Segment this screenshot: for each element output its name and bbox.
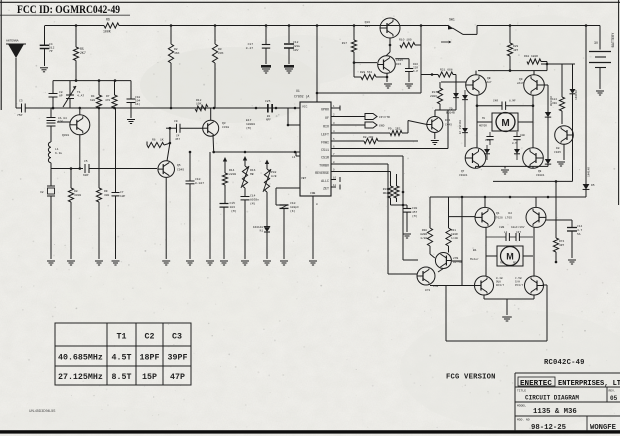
svg-text:1N4148: 1N4148 xyxy=(588,167,591,177)
svg-text:C445: C445 xyxy=(445,124,452,127)
svg-text:4R7: 4R7 xyxy=(513,49,518,52)
svg-text:REV.: REV. xyxy=(609,390,616,393)
svg-text:R31: R31 xyxy=(451,229,456,232)
svg-text:C3001: C3001 xyxy=(536,174,545,177)
svg-text:C10: C10 xyxy=(195,178,201,181)
svg-text:LT05: LT05 xyxy=(505,217,512,220)
svg-text:WONGFE: WONGFE xyxy=(590,424,617,432)
svg-text:FCG VERSION: FCG VERSION xyxy=(446,374,496,382)
svg-text:R13: R13 xyxy=(383,188,388,191)
svg-text:Q5: Q5 xyxy=(177,164,181,167)
svg-text:98-12-25: 98-12-25 xyxy=(531,424,566,432)
svg-text:C15: C15 xyxy=(230,202,236,205)
svg-text:2K7: 2K7 xyxy=(80,51,86,55)
svg-text:VCC: VCC xyxy=(302,106,308,109)
svg-text:D5: D5 xyxy=(591,184,595,187)
svg-text:23K: 23K xyxy=(218,52,224,55)
svg-text:7P: 7P xyxy=(49,50,53,53)
svg-text:C7: C7 xyxy=(120,191,124,194)
svg-text:C17: C17 xyxy=(248,43,254,46)
svg-text:CY8O2 (A: CY8O2 (A xyxy=(294,95,309,99)
svg-text:L2: L2 xyxy=(504,231,508,234)
svg-text:2R2: 2R2 xyxy=(395,128,401,131)
svg-text:27.125MHz: 27.125MHz xyxy=(58,373,103,382)
svg-text:8.MF: 8.MF xyxy=(509,100,516,103)
svg-text:R12: R12 xyxy=(196,99,202,102)
svg-text:Q1: Q1 xyxy=(496,212,500,215)
svg-text:CS1R: CS1R xyxy=(321,156,329,160)
svg-text:0?2: 0?2 xyxy=(425,289,430,292)
svg-text:05: 05 xyxy=(610,395,618,402)
svg-text:D2: D2 xyxy=(508,212,512,215)
svg-text:C47: C47 xyxy=(516,231,521,234)
svg-text:10V: 10V xyxy=(293,49,299,52)
svg-text:QB: QB xyxy=(487,77,491,80)
svg-text:K1: K1 xyxy=(260,230,264,233)
svg-text:R30: R30 xyxy=(422,229,427,232)
svg-text:(M): (M) xyxy=(250,202,256,206)
svg-text:P9: P9 xyxy=(388,128,392,131)
svg-text:R16: R16 xyxy=(250,169,256,172)
svg-text:457: 457 xyxy=(412,211,417,214)
svg-text:C4R: C4R xyxy=(493,100,498,103)
svg-text:LEFT: LEFT xyxy=(321,133,329,137)
svg-text:1/2W: 1/2W xyxy=(420,236,427,240)
svg-text:R74: R74 xyxy=(559,240,564,243)
svg-text:(M): (M) xyxy=(412,214,417,218)
svg-text:P02: P02 xyxy=(271,171,277,174)
svg-text:AP/50: AP/50 xyxy=(453,260,462,264)
svg-text:330: 330 xyxy=(552,102,557,105)
svg-text:R17: R17 xyxy=(342,42,347,45)
svg-text:470: 470 xyxy=(105,99,110,102)
svg-text:C10: C10 xyxy=(290,202,296,205)
svg-text:(M): (M) xyxy=(246,126,252,130)
svg-text:X2: X2 xyxy=(40,191,44,194)
svg-text:CNB: CNB xyxy=(310,192,315,195)
svg-text:R4: R4 xyxy=(91,95,95,98)
svg-text:DR2: DR2 xyxy=(383,192,388,195)
svg-text:27B: 27B xyxy=(453,257,458,260)
svg-text:10P: 10P xyxy=(120,195,125,198)
svg-text:M1: M1 xyxy=(482,117,486,120)
svg-text:8039n: 8039n xyxy=(250,199,259,202)
svg-text:R10 100: R10 100 xyxy=(399,39,412,42)
svg-text:MOD. NO: MOD. NO xyxy=(517,419,530,422)
svg-text:C3: C3 xyxy=(172,333,182,342)
svg-text:REVERSE: REVERSE xyxy=(315,171,329,175)
svg-text:Q16: Q16 xyxy=(365,21,371,24)
svg-text:R29: R29 xyxy=(513,45,518,48)
svg-text:1AA7: 1AA7 xyxy=(485,81,492,84)
svg-text:R6: R6 xyxy=(106,18,110,22)
svg-text:C945: C945 xyxy=(177,169,184,172)
svg-text:C4I: C4I xyxy=(485,139,490,142)
svg-text:Q3: Q3 xyxy=(222,122,226,125)
svg-text:75P: 75P xyxy=(17,114,23,117)
svg-text:R7: R7 xyxy=(106,95,110,98)
svg-text:10uF/16V: 10uF/16V xyxy=(511,225,525,229)
svg-text:L3: L3 xyxy=(292,156,296,159)
svg-text:K.P: K.P xyxy=(413,70,418,73)
svg-text:617: 617 xyxy=(365,25,371,28)
svg-text:39PF: 39PF xyxy=(168,354,188,363)
svg-text:1K: 1K xyxy=(160,139,164,142)
svg-text:C25: C25 xyxy=(265,100,271,103)
svg-text:C14: C14 xyxy=(577,225,582,228)
svg-text:FCC ID: OGMRC042-49: FCC ID: OGMRC042-49 xyxy=(17,4,120,16)
svg-text:DC3/7: DC3/7 xyxy=(496,283,504,287)
svg-text:R17: R17 xyxy=(432,91,437,94)
svg-text:R9: R9 xyxy=(104,190,108,193)
svg-text:GND: GND xyxy=(379,124,385,127)
svg-text:2006: 2006 xyxy=(430,95,437,98)
svg-text:B1: B1 xyxy=(473,249,477,252)
svg-text:15P: 15P xyxy=(142,373,157,382)
svg-text:2200: 2200 xyxy=(229,173,236,176)
svg-text:70: 70 xyxy=(449,108,453,111)
svg-text:0.47: 0.47 xyxy=(246,47,253,50)
svg-text:C318: C318 xyxy=(222,126,229,129)
svg-text:TURBO: TURBO xyxy=(319,164,329,168)
svg-text:U1: U1 xyxy=(296,89,300,93)
svg-text:D13: D13 xyxy=(445,119,450,122)
svg-text:BATTERY: BATTERY xyxy=(612,32,616,48)
svg-text:VBT: VBT xyxy=(301,177,306,180)
svg-text:180R: 180R xyxy=(451,233,458,236)
svg-text:BU14B: BU14B xyxy=(446,112,455,115)
svg-text:300: 300 xyxy=(104,194,109,197)
svg-text:D8: D8 xyxy=(556,147,560,150)
svg-text:R2: R2 xyxy=(174,48,178,51)
svg-text:10: 10 xyxy=(333,176,337,179)
svg-text:E4 1N4148: E4 1N4148 xyxy=(459,120,462,134)
svg-text:10K: 10K xyxy=(196,103,202,106)
svg-text:OF: OF xyxy=(325,116,329,120)
svg-text:40.685MHz: 40.685MHz xyxy=(58,354,103,363)
svg-text:1K): 1K) xyxy=(135,102,140,106)
svg-text:C3: C3 xyxy=(19,100,23,103)
svg-text:CIRCUIT DIAGRAM: CIRCUIT DIAGRAM xyxy=(525,394,579,401)
svg-text:C30: C30 xyxy=(412,207,417,210)
svg-text:R3: R3 xyxy=(218,48,222,51)
svg-text:ZET: ZET xyxy=(323,187,329,191)
svg-text:S/H: S/H xyxy=(515,280,520,284)
svg-text:680: 680 xyxy=(90,99,95,102)
svg-text:R6: R6 xyxy=(152,139,156,142)
svg-text:C2: C2 xyxy=(145,333,155,342)
svg-text:(K): (K) xyxy=(290,209,296,213)
svg-text:M: M xyxy=(501,118,509,129)
svg-text:4.A7: 4.A7 xyxy=(77,95,84,98)
svg-text:SW1: SW1 xyxy=(449,18,455,22)
svg-text:103: 103 xyxy=(230,206,236,209)
svg-text:REV: REV xyxy=(513,262,518,265)
svg-text:C9: C9 xyxy=(174,120,178,123)
svg-text:Q9: Q9 xyxy=(538,170,542,173)
svg-text:R8 2R2: R8 2R2 xyxy=(363,136,374,139)
svg-text:A/B: A/B xyxy=(271,174,277,178)
svg-text:UPRO: UPRO xyxy=(321,108,329,112)
svg-text:8.M: 8.M xyxy=(512,142,517,145)
svg-text:FWD: FWD xyxy=(500,262,505,265)
svg-text:3300: 3300 xyxy=(74,194,81,197)
svg-text:102pF: 102pF xyxy=(290,206,299,209)
svg-text:R8: R8 xyxy=(74,190,78,193)
svg-text:C2B: C2B xyxy=(499,226,504,229)
svg-text:R10 180R: R10 180R xyxy=(524,55,538,58)
svg-text:C14: C14 xyxy=(250,195,256,198)
svg-text:CP/CTR: CP/CTR xyxy=(379,115,390,119)
svg-text:Q7: Q7 xyxy=(461,170,465,173)
svg-text:CS11: CS11 xyxy=(321,148,329,152)
svg-text:457: 457 xyxy=(175,138,180,141)
svg-text:R14: R14 xyxy=(229,169,235,172)
svg-text:R21 608: R21 608 xyxy=(440,69,453,72)
svg-text:D15: D15 xyxy=(396,63,401,66)
svg-text:MB: MB xyxy=(250,173,254,176)
svg-text:5A: 5A xyxy=(577,233,581,236)
svg-text:RC042C-49: RC042C-49 xyxy=(544,359,585,367)
svg-text:1135 & M36: 1135 & M36 xyxy=(533,408,577,416)
svg-text:ENTERPRISES, LTD.: ENTERPRISES, LTD. xyxy=(558,380,620,388)
svg-text:8.5T: 8.5T xyxy=(112,373,132,382)
svg-text:C945: C945 xyxy=(554,151,561,154)
svg-text:4.5T: 4.5T xyxy=(112,354,132,363)
svg-text:MOTOR: MOTOR xyxy=(479,125,487,128)
svg-text:100K: 100K xyxy=(103,30,111,34)
svg-text:46K: 46K xyxy=(174,52,180,55)
svg-text:6.3u: 6.3u xyxy=(55,152,62,155)
svg-text:1/2W: 1/2W xyxy=(451,236,458,240)
svg-text:R28 572: R28 572 xyxy=(360,71,372,74)
svg-text:11: 11 xyxy=(333,184,337,187)
svg-text:MODEL: MODEL xyxy=(517,405,526,408)
svg-text:0.047: 0.047 xyxy=(195,182,204,185)
svg-text:C5: C5 xyxy=(84,160,88,163)
svg-text:18PF: 18PF xyxy=(140,354,160,363)
svg-text:RIO: RIO xyxy=(323,125,329,129)
svg-text:4.7: 4.7 xyxy=(577,229,582,232)
svg-text:C12: C12 xyxy=(293,41,299,44)
svg-text:TITLE: TITLE xyxy=(517,390,526,393)
svg-text:CA15: CA15 xyxy=(396,59,403,62)
svg-text:ALLC: ALLC xyxy=(321,179,329,183)
svg-text:C2B: C2B xyxy=(520,134,525,137)
svg-text:60P: 60P xyxy=(83,174,89,177)
svg-text:Motor: Motor xyxy=(470,258,479,261)
svg-text:FOWI: FOWI xyxy=(321,141,329,145)
svg-text:PC3/7: PC3/7 xyxy=(515,283,523,287)
svg-text:L1: L1 xyxy=(55,148,59,151)
svg-text:(M): (M) xyxy=(231,209,237,213)
svg-text:T1: T1 xyxy=(117,333,127,342)
svg-text:UN-45D3D94L5S: UN-45D3D94L5S xyxy=(29,409,56,413)
svg-text:2A17: 2A17 xyxy=(517,82,524,85)
svg-text:820R: 820R xyxy=(420,233,427,236)
svg-text:C3001: C3001 xyxy=(459,174,468,177)
svg-text:1N4148: 1N4148 xyxy=(575,90,578,100)
svg-text:220u: 220u xyxy=(293,45,300,48)
svg-text:1k4: 1k4 xyxy=(552,97,557,101)
svg-text:LT020: LT020 xyxy=(494,217,503,220)
svg-text:10000: 10000 xyxy=(246,123,255,126)
svg-text:Q9: Q9 xyxy=(519,78,523,81)
svg-text:47P: 47P xyxy=(170,373,185,382)
svg-text:ENERTEC: ENERTEC xyxy=(520,380,552,388)
svg-text:Q301: Q301 xyxy=(62,134,69,137)
svg-text:8P: 8P xyxy=(59,95,63,98)
svg-text:NPF: NPF xyxy=(266,119,271,122)
svg-text:ANTENNA: ANTENNA xyxy=(6,40,19,43)
svg-text:M: M xyxy=(506,252,514,262)
svg-text:E17: E17 xyxy=(246,119,252,122)
svg-text:4R7: 4R7 xyxy=(559,244,564,247)
